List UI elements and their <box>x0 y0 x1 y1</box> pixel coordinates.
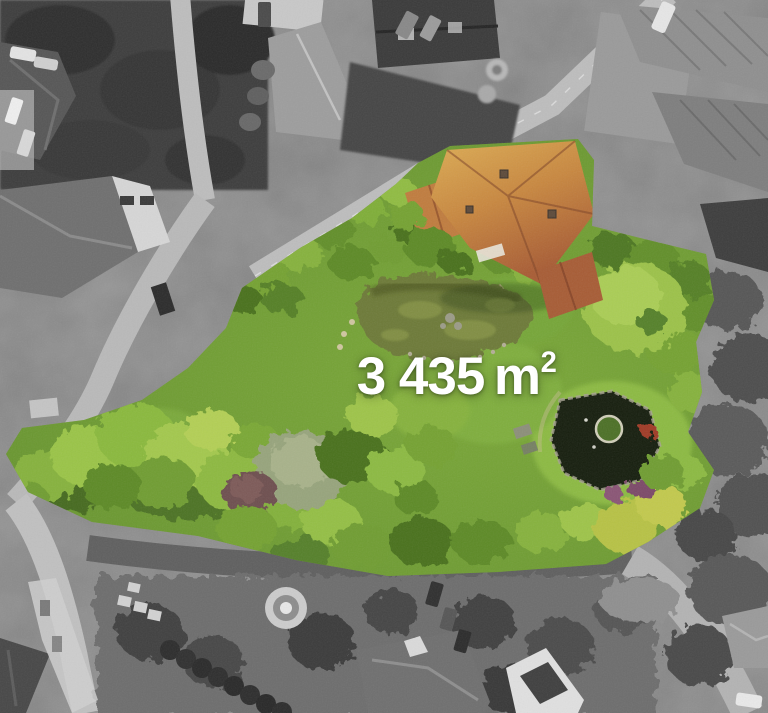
area-exponent: 2 <box>541 347 556 379</box>
aerial-photo: 3 435m2 <box>0 0 768 713</box>
area-value: 3 435 <box>357 347 485 406</box>
area-unit: m <box>494 347 540 406</box>
area-label: 3 435m2 <box>357 346 556 407</box>
